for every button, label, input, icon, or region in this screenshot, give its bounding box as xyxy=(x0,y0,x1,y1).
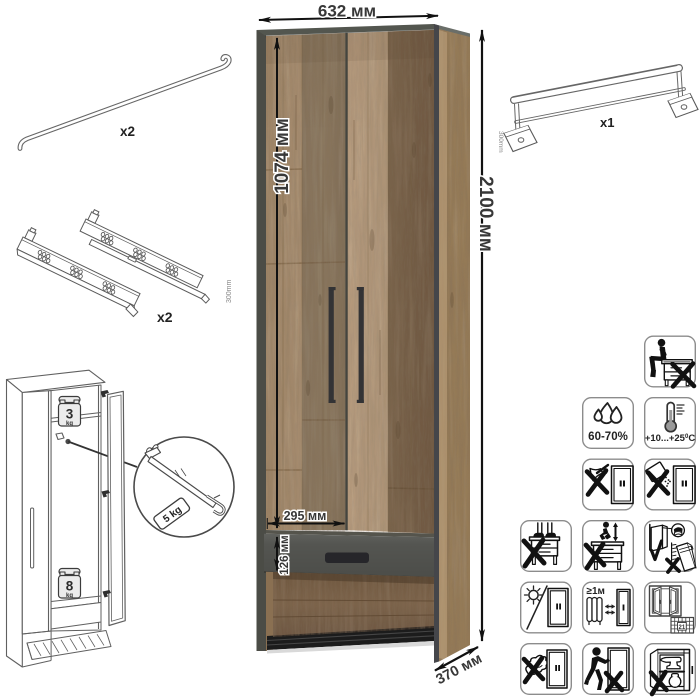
svg-text:21: 21 xyxy=(679,625,686,631)
svg-text:x1: x1 xyxy=(600,115,614,130)
svg-text:295 мм: 295 мм xyxy=(284,509,327,523)
svg-text:1074 мм: 1074 мм xyxy=(272,118,293,194)
svg-text:60-70%: 60-70% xyxy=(588,431,628,443)
svg-text:x2: x2 xyxy=(120,124,135,139)
svg-text:3: 3 xyxy=(66,407,74,422)
svg-text:300mm: 300mm xyxy=(226,279,233,303)
svg-text:632 мм: 632 мм xyxy=(318,2,376,21)
svg-text:x2: x2 xyxy=(157,309,173,325)
svg-text:+10...+250С: +10...+250С xyxy=(645,433,696,444)
svg-text:kg: kg xyxy=(66,421,73,427)
svg-text:300mm: 300mm xyxy=(497,131,504,153)
svg-text:8: 8 xyxy=(66,579,74,594)
svg-text:kg: kg xyxy=(66,593,73,599)
svg-text:126 мм: 126 мм xyxy=(279,535,291,574)
svg-text:≥1м: ≥1м xyxy=(587,586,605,597)
svg-text:2100 мм: 2100 мм xyxy=(475,176,496,252)
